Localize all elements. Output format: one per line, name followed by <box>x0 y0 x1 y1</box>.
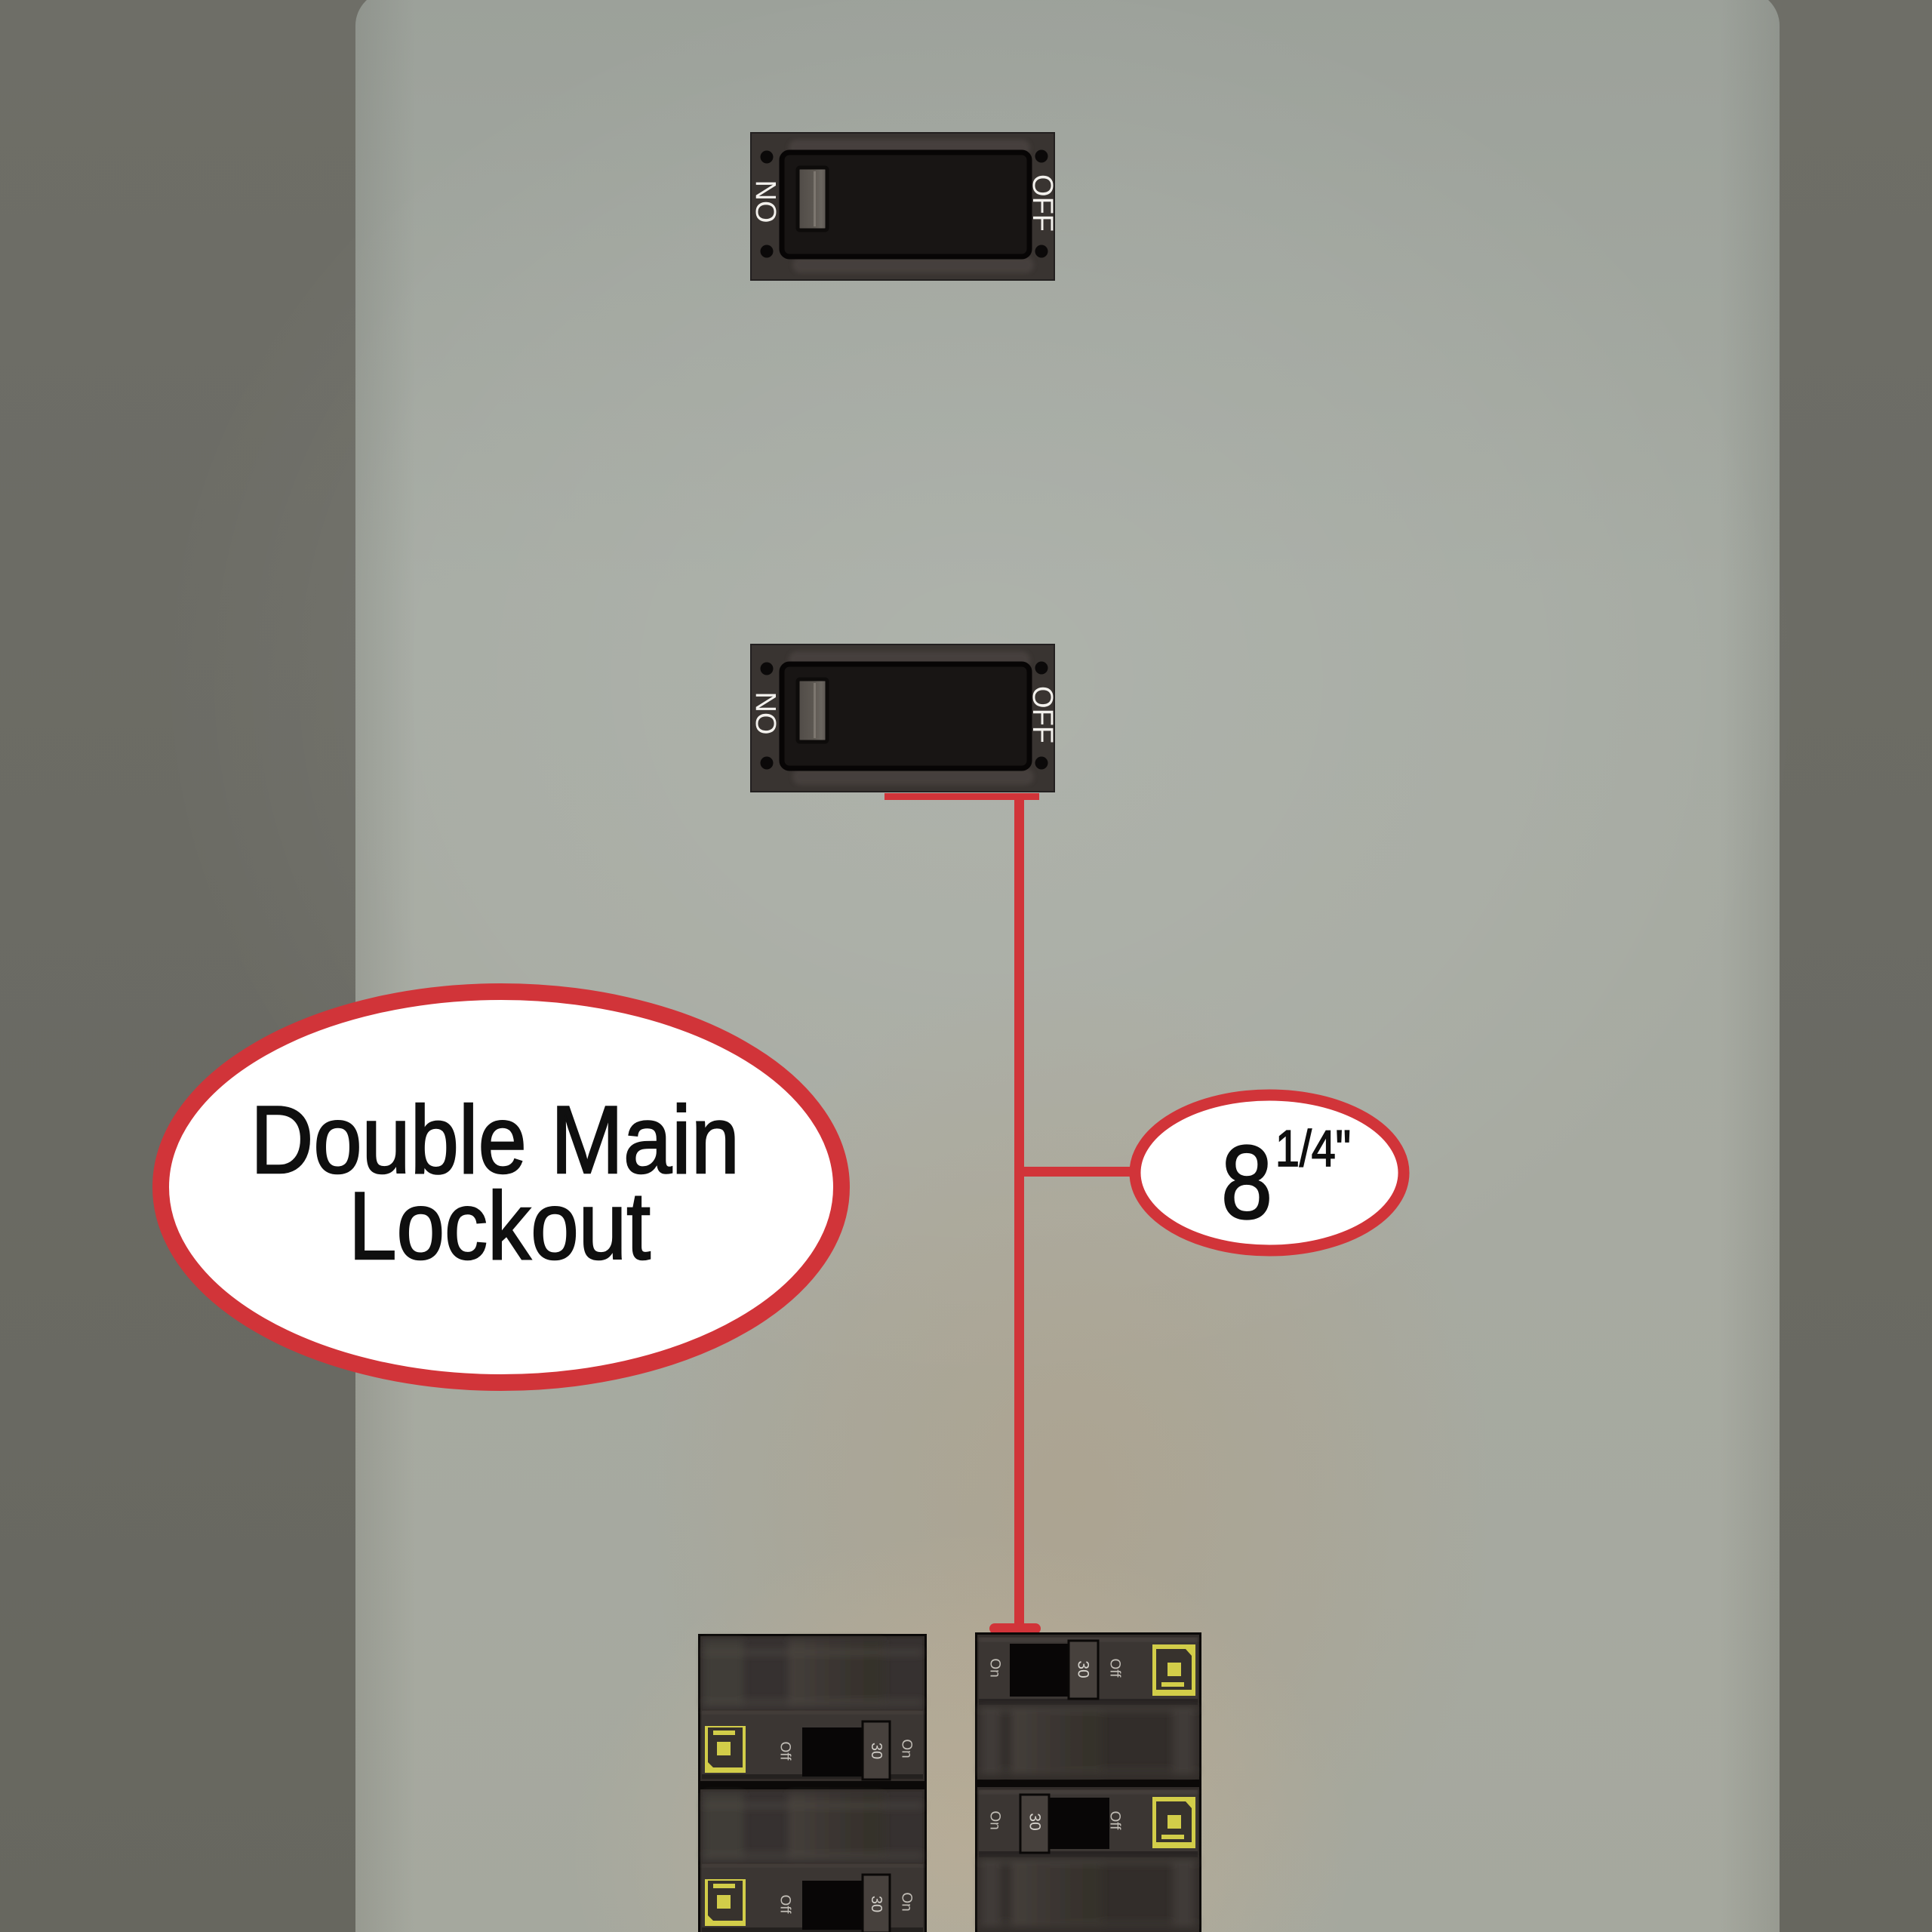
svg-text:30: 30 <box>1026 1813 1044 1830</box>
svg-text:30: 30 <box>1075 1660 1092 1678</box>
svg-text:1/4": 1/4" <box>1275 1120 1351 1177</box>
svg-text:8: 8 <box>1221 1124 1272 1241</box>
svg-text:Lockout: Lockout <box>349 1172 651 1279</box>
